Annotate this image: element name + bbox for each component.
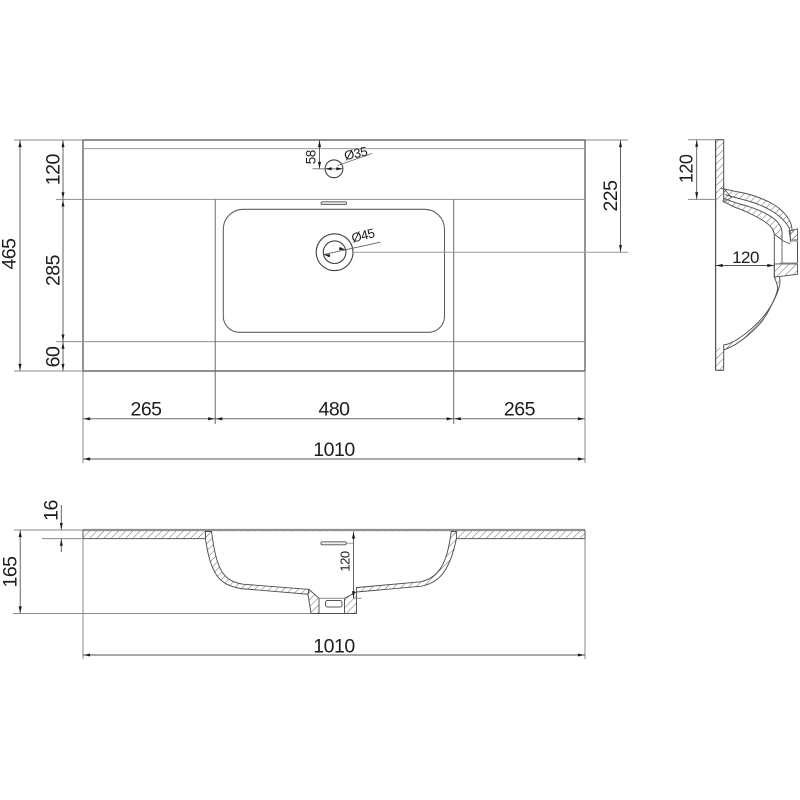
svg-text:16: 16 [41, 500, 63, 521]
svg-text:465: 465 [0, 238, 21, 270]
svg-text:225: 225 [600, 180, 622, 212]
svg-text:265: 265 [504, 399, 536, 421]
svg-text:120: 120 [42, 154, 64, 186]
svg-text:1010: 1010 [313, 636, 355, 658]
svg-text:120: 120 [677, 154, 697, 183]
svg-text:165: 165 [0, 556, 22, 588]
svg-text:60: 60 [42, 346, 64, 367]
svg-text:1010: 1010 [313, 439, 355, 461]
svg-text:58: 58 [303, 150, 318, 164]
svg-text:480: 480 [318, 399, 350, 421]
svg-text:285: 285 [42, 254, 64, 286]
svg-text:120: 120 [338, 551, 353, 571]
svg-text:265: 265 [130, 399, 162, 421]
svg-text:120: 120 [732, 248, 759, 267]
